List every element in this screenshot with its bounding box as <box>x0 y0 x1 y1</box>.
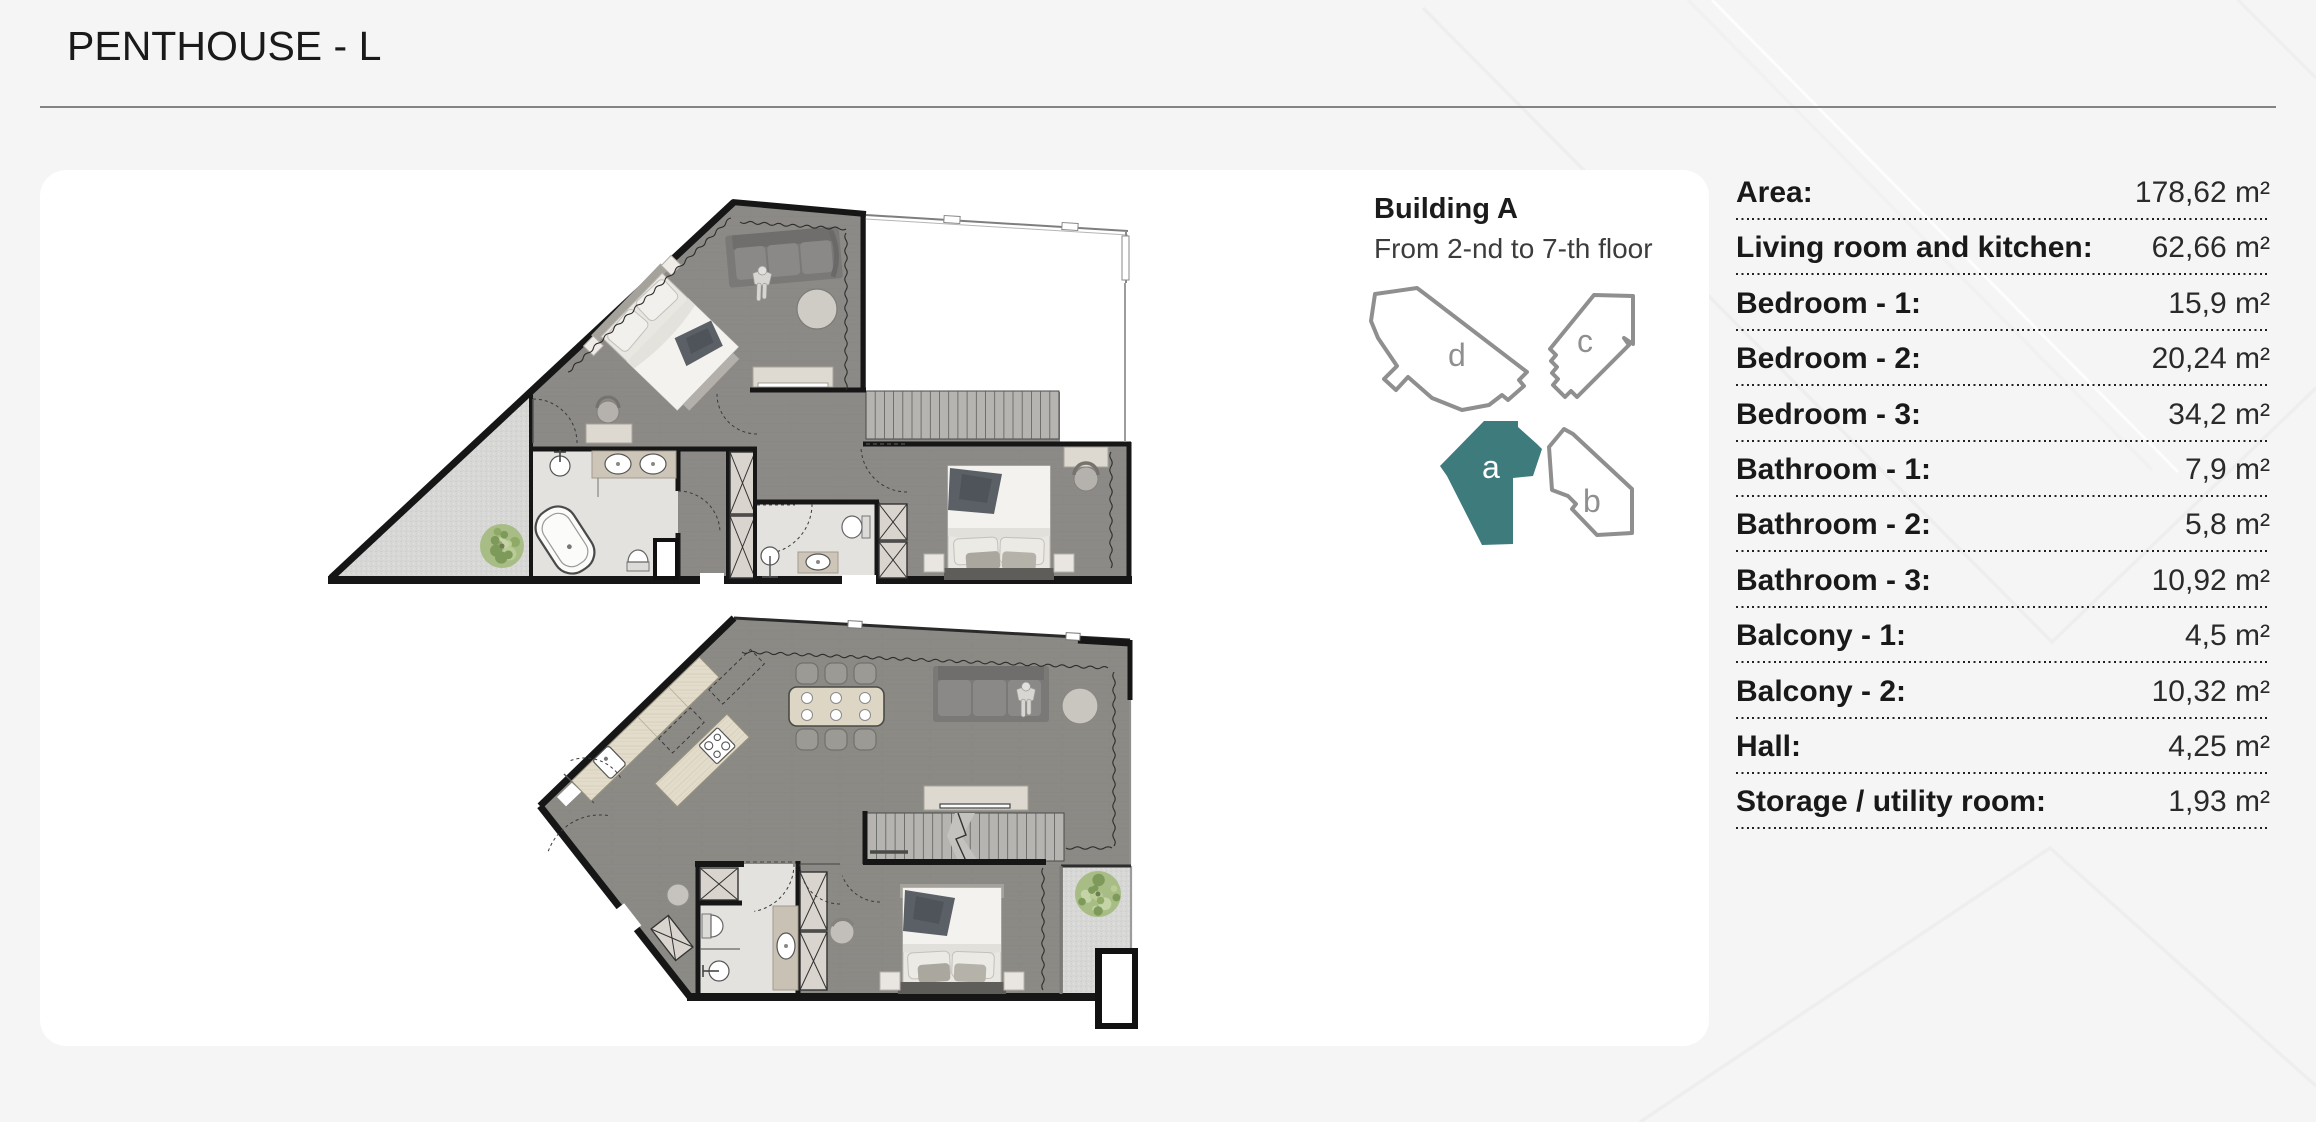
svg-text:a: a <box>1482 449 1500 485</box>
svg-text:c: c <box>1577 323 1593 359</box>
svg-text:b: b <box>1583 483 1601 519</box>
svg-text:d: d <box>1448 337 1466 373</box>
